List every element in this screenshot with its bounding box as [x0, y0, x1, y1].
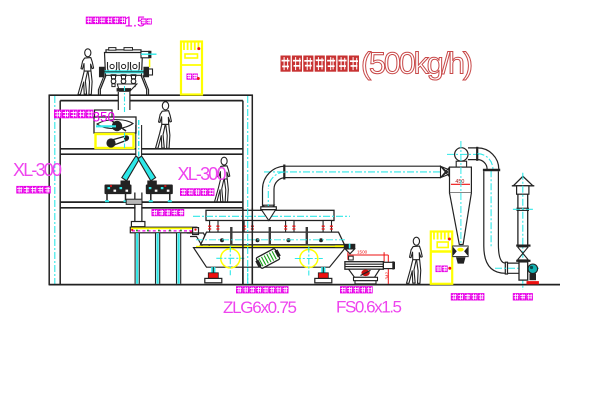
svg-text:(500kg/h): (500kg/h): [361, 47, 473, 81]
svg-text:350: 350: [93, 110, 116, 125]
svg-text:1500: 1500: [357, 250, 368, 255]
svg-text:FS0.6x1.5: FS0.6x1.5: [336, 298, 402, 317]
svg-text:XL-300: XL-300: [13, 160, 62, 180]
svg-text:342: 342: [385, 271, 390, 279]
svg-text:XL-300: XL-300: [178, 164, 227, 184]
svg-text:450: 450: [455, 179, 464, 185]
svg-text:ZLG6x0.75: ZLG6x0.75: [223, 298, 297, 317]
